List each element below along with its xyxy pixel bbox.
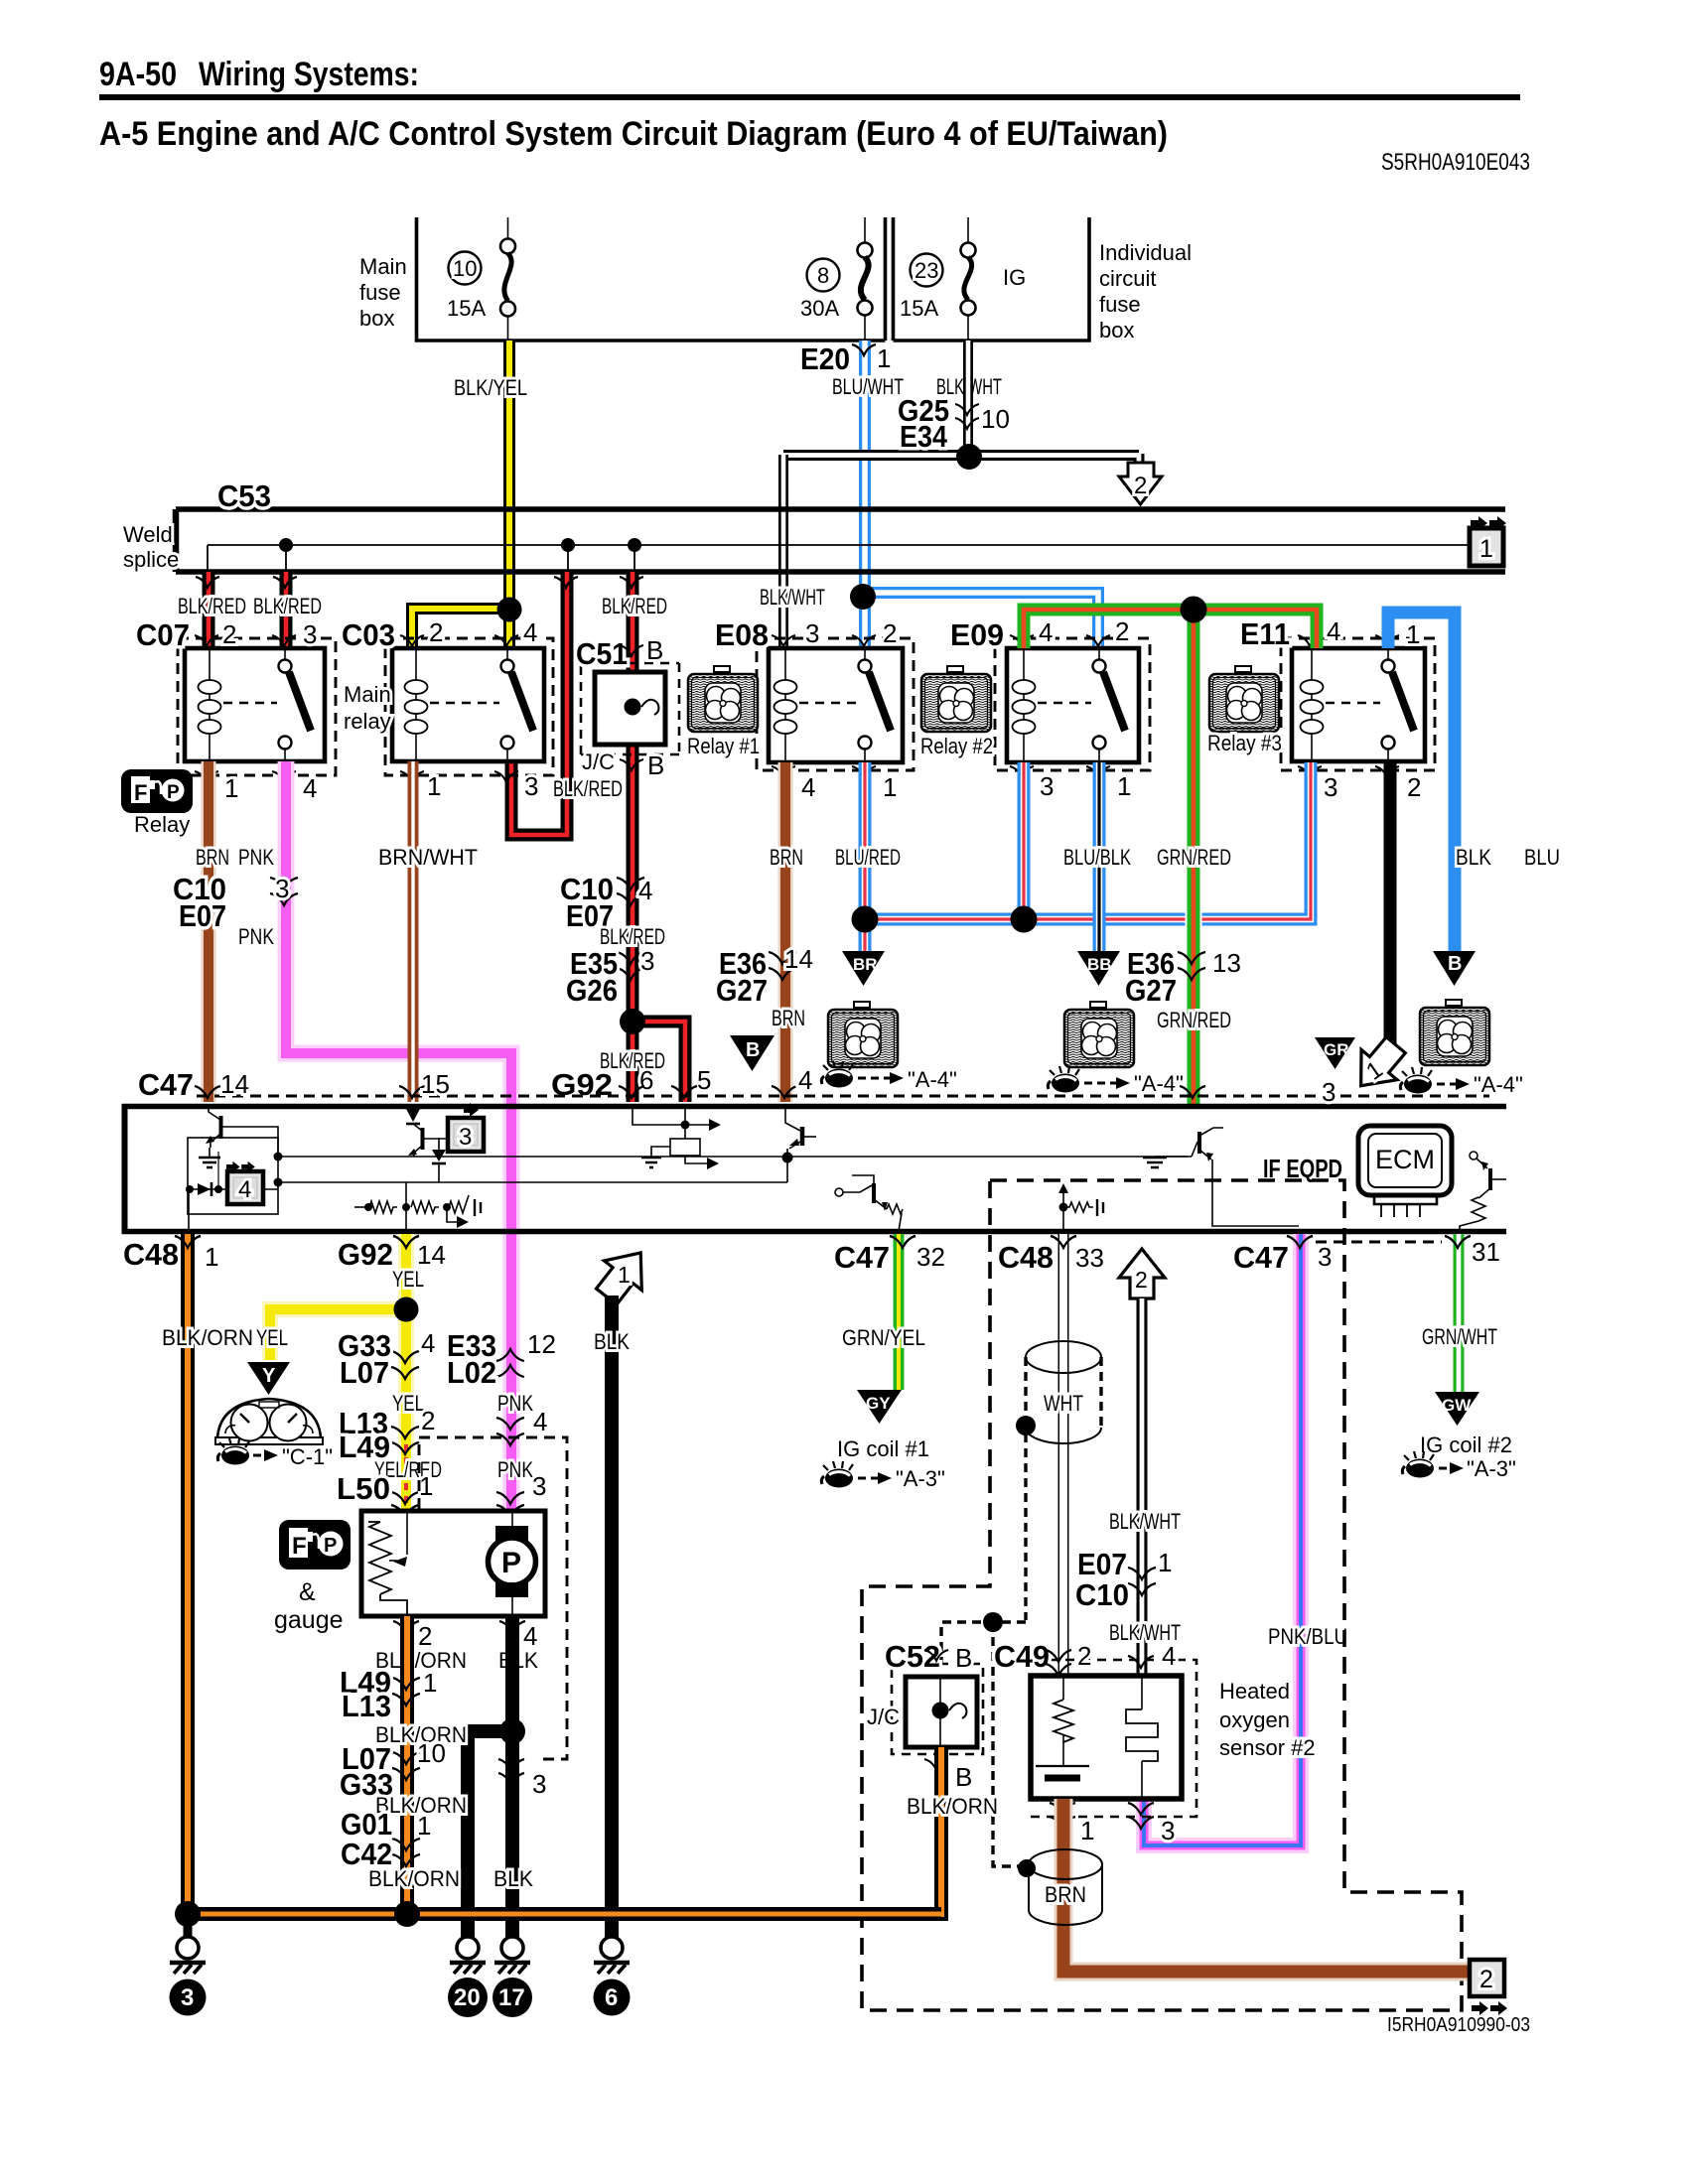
svg-text:3: 3 <box>1324 772 1337 802</box>
svg-text:1: 1 <box>1479 535 1493 563</box>
svg-text:1: 1 <box>1406 619 1420 649</box>
svg-text:C07: C07 <box>136 617 190 652</box>
svg-text:YEL: YEL <box>392 1267 424 1292</box>
svg-text:BLK/RED: BLK/RED <box>178 594 246 618</box>
svg-text:3: 3 <box>181 1984 194 2011</box>
svg-text:C48: C48 <box>123 1237 179 1272</box>
svg-text:4: 4 <box>238 1176 251 1203</box>
svg-text:30A: 30A <box>800 296 839 321</box>
svg-text:10: 10 <box>981 404 1010 434</box>
svg-text:3: 3 <box>532 1769 546 1799</box>
svg-text:&: & <box>299 1578 316 1606</box>
svg-text:C47: C47 <box>138 1067 194 1102</box>
svg-text:6: 6 <box>605 1984 618 2011</box>
svg-text:PNK/BLU: PNK/BLU <box>1268 1624 1347 1649</box>
svg-text:3: 3 <box>275 874 289 903</box>
svg-text:C47: C47 <box>1233 1240 1289 1275</box>
svg-text:BLU/WHT: BLU/WHT <box>832 374 904 399</box>
svg-text:3: 3 <box>805 618 819 648</box>
svg-text:fuse: fuse <box>359 280 401 305</box>
svg-text:BLK/RED: BLK/RED <box>553 776 623 801</box>
svg-text:6: 6 <box>639 1065 653 1095</box>
svg-text:J/C: J/C <box>867 1705 900 1729</box>
svg-text:4: 4 <box>303 773 317 803</box>
svg-text:splice: splice <box>123 547 179 572</box>
svg-text:BLK/RED: BLK/RED <box>602 594 667 618</box>
svg-text:1: 1 <box>1117 771 1131 801</box>
svg-text:PNK: PNK <box>238 924 274 949</box>
svg-text:sensor #2: sensor #2 <box>1219 1735 1316 1760</box>
svg-text:GRN/RED: GRN/RED <box>1157 845 1231 870</box>
svg-text:2: 2 <box>1407 772 1421 802</box>
svg-text:E07: E07 <box>179 898 226 933</box>
svg-text:BRN: BRN <box>770 845 803 870</box>
svg-text:fuse: fuse <box>1099 292 1141 317</box>
svg-text:B: B <box>955 1643 972 1673</box>
svg-text:oxygen: oxygen <box>1219 1707 1290 1732</box>
svg-text:"A-3": "A-3" <box>896 1466 945 1491</box>
svg-text:P: P <box>324 1535 337 1557</box>
svg-text:4: 4 <box>533 1407 547 1436</box>
svg-text:gauge: gauge <box>274 1606 344 1634</box>
svg-text:E08: E08 <box>715 617 769 652</box>
svg-text:1: 1 <box>427 771 441 801</box>
svg-text:4: 4 <box>523 1621 537 1651</box>
svg-text:3: 3 <box>532 1471 546 1501</box>
svg-text:13: 13 <box>1212 948 1241 978</box>
svg-text:1: 1 <box>1080 1816 1094 1845</box>
svg-text:BLU: BLU <box>1524 845 1560 870</box>
svg-text:box: box <box>1099 318 1134 342</box>
svg-text:3: 3 <box>1322 1077 1336 1107</box>
svg-text:S5RH0A910E043: S5RH0A910E043 <box>1381 149 1530 176</box>
svg-text:4: 4 <box>523 617 537 647</box>
svg-text:I5RH0A910990-03: I5RH0A910990-03 <box>1387 2014 1530 2036</box>
svg-text:"A-4": "A-4" <box>908 1067 957 1092</box>
svg-text:E11: E11 <box>1240 616 1290 651</box>
svg-text:4: 4 <box>421 1328 435 1358</box>
svg-text:2: 2 <box>1135 1267 1148 1293</box>
svg-text:3: 3 <box>459 1124 472 1151</box>
svg-text:Main: Main <box>359 254 407 279</box>
svg-text:GW: GW <box>1442 1396 1472 1415</box>
svg-text:relay: relay <box>344 709 391 734</box>
svg-text:G92: G92 <box>338 1237 393 1272</box>
svg-text:BR: BR <box>853 955 878 974</box>
svg-text:P: P <box>501 1547 521 1579</box>
svg-text:C10: C10 <box>1075 1577 1129 1612</box>
svg-text:2: 2 <box>883 618 897 648</box>
svg-text:"A-4": "A-4" <box>1474 1072 1523 1097</box>
svg-text:4: 4 <box>638 876 652 905</box>
svg-text:12: 12 <box>527 1329 556 1359</box>
svg-text:BLK/WHT: BLK/WHT <box>760 585 825 610</box>
svg-text:1: 1 <box>877 343 891 373</box>
svg-text:BRN/WHT: BRN/WHT <box>378 845 478 870</box>
svg-text:C51: C51 <box>576 636 628 671</box>
svg-text:G27: G27 <box>716 973 768 1008</box>
svg-text:BLK/ORN: BLK/ORN <box>368 1866 460 1891</box>
svg-text:2: 2 <box>429 617 443 647</box>
svg-text:2: 2 <box>1115 616 1129 646</box>
svg-text:Relay #1: Relay #1 <box>687 734 760 758</box>
svg-text:BLK/WHT: BLK/WHT <box>1109 1509 1181 1534</box>
svg-text:C48: C48 <box>998 1240 1054 1275</box>
svg-text:GY: GY <box>866 1394 891 1413</box>
svg-text:1: 1 <box>417 1811 431 1841</box>
svg-text:"A-4": "A-4" <box>1134 1071 1184 1096</box>
svg-text:10: 10 <box>417 1738 446 1768</box>
svg-text:Individual: Individual <box>1099 240 1192 265</box>
svg-text:1: 1 <box>618 1262 631 1288</box>
svg-text:BB: BB <box>1087 955 1112 974</box>
svg-text:B: B <box>746 1039 760 1061</box>
svg-text:2: 2 <box>418 1621 432 1651</box>
svg-text:3: 3 <box>640 946 654 976</box>
svg-text:E09: E09 <box>950 617 1004 652</box>
svg-text:BLK/RED: BLK/RED <box>253 594 322 618</box>
svg-text:33: 33 <box>1075 1243 1104 1273</box>
svg-text:L02: L02 <box>447 1355 496 1390</box>
svg-text:YEL: YEL <box>392 1391 424 1416</box>
svg-text:G27: G27 <box>1125 973 1177 1008</box>
svg-text:E07: E07 <box>1077 1547 1127 1581</box>
svg-text:BLK/ORN: BLK/ORN <box>907 1794 998 1819</box>
svg-text:B: B <box>955 1762 972 1792</box>
svg-text:PNK: PNK <box>497 1457 533 1482</box>
svg-text:BRN: BRN <box>772 1006 805 1030</box>
svg-text:4: 4 <box>1162 1641 1176 1671</box>
svg-text:"A-3": "A-3" <box>1467 1456 1516 1481</box>
svg-text:B: B <box>1448 953 1462 975</box>
svg-text:GRN/RED: GRN/RED <box>1157 1008 1231 1032</box>
svg-text:F: F <box>134 780 147 805</box>
svg-text:BRN: BRN <box>196 845 229 870</box>
svg-text:3: 3 <box>303 619 317 649</box>
svg-text:Main: Main <box>344 682 391 707</box>
svg-text:box: box <box>359 306 394 331</box>
svg-text:15: 15 <box>421 1069 450 1099</box>
svg-text:BLK: BLK <box>1456 845 1491 870</box>
svg-text:Weld: Weld <box>123 522 173 547</box>
svg-text:B: B <box>646 635 663 665</box>
svg-text:2: 2 <box>421 1406 435 1435</box>
svg-text:3: 3 <box>1161 1816 1175 1845</box>
svg-text:BLU/RED: BLU/RED <box>835 845 901 870</box>
svg-text:2: 2 <box>1077 1641 1091 1671</box>
svg-text:C03: C03 <box>342 617 395 652</box>
svg-text:GRN/WHT: GRN/WHT <box>1422 1324 1497 1349</box>
svg-text:B: B <box>647 751 664 780</box>
svg-text:PNK: PNK <box>497 1391 533 1416</box>
svg-text:3: 3 <box>524 771 538 801</box>
svg-text:C52: C52 <box>885 1639 940 1674</box>
svg-text:J/C: J/C <box>582 750 615 774</box>
svg-text:C49: C49 <box>994 1639 1050 1674</box>
svg-text:1: 1 <box>419 1471 433 1501</box>
svg-text:1: 1 <box>423 1668 437 1698</box>
svg-text:L13: L13 <box>342 1689 391 1723</box>
svg-text:1: 1 <box>1158 1548 1172 1577</box>
svg-text:A-5 Engine and A/C Control Sys: A-5 Engine and A/C Control System Circui… <box>99 115 1168 153</box>
svg-text:BLK: BLK <box>493 1866 533 1891</box>
svg-text:"C-1": "C-1" <box>282 1444 333 1469</box>
svg-text:BRN: BRN <box>1045 1882 1086 1907</box>
svg-text:2: 2 <box>222 619 236 649</box>
svg-text:2: 2 <box>1479 1966 1493 1993</box>
svg-text:GR: GR <box>1324 1040 1349 1059</box>
svg-text:8: 8 <box>817 263 829 288</box>
svg-text:G26: G26 <box>566 973 618 1008</box>
svg-text:P: P <box>167 782 180 803</box>
svg-text:F: F <box>292 1533 307 1560</box>
svg-text:15A: 15A <box>900 296 938 321</box>
svg-text:31: 31 <box>1472 1237 1500 1267</box>
svg-text:1: 1 <box>883 772 897 802</box>
svg-text:BLK: BLK <box>594 1329 630 1354</box>
svg-text:Heated: Heated <box>1219 1679 1290 1704</box>
svg-text:C47: C47 <box>834 1240 890 1275</box>
svg-text:C53: C53 <box>217 478 271 513</box>
svg-text:23: 23 <box>914 258 938 283</box>
svg-text:4: 4 <box>1039 617 1053 647</box>
svg-text:9A-50: 9A-50 <box>99 56 177 93</box>
svg-text:15A: 15A <box>447 296 486 321</box>
svg-text:4: 4 <box>798 1065 812 1095</box>
svg-text:GRN/YEL: GRN/YEL <box>842 1325 925 1350</box>
svg-text:Relay: Relay <box>134 812 190 837</box>
svg-text:BLK/YEL: BLK/YEL <box>454 375 527 400</box>
svg-text:BLU/BLK: BLU/BLK <box>1063 845 1131 870</box>
svg-text:IG coil #2: IG coil #2 <box>1420 1433 1512 1457</box>
svg-text:ECM: ECM <box>1375 1145 1435 1174</box>
svg-text:IG coil #1: IG coil #1 <box>837 1436 929 1461</box>
svg-text:1: 1 <box>224 773 238 803</box>
svg-text:14: 14 <box>220 1069 249 1099</box>
svg-text:Y: Y <box>262 1365 276 1387</box>
svg-text:Relay #2: Relay #2 <box>920 734 993 758</box>
svg-text:14: 14 <box>417 1240 446 1270</box>
svg-text:E20: E20 <box>800 341 850 376</box>
svg-text:Relay #3: Relay #3 <box>1207 731 1282 755</box>
svg-text:10: 10 <box>453 256 477 281</box>
svg-text:Wiring Systems:: Wiring Systems: <box>199 56 419 93</box>
svg-text:circuit: circuit <box>1099 266 1156 291</box>
svg-text:E34: E34 <box>900 419 948 454</box>
svg-text:YEL: YEL <box>256 1325 288 1350</box>
svg-text:L07: L07 <box>340 1355 389 1390</box>
svg-text:17: 17 <box>498 1984 525 2011</box>
svg-text:3: 3 <box>1318 1242 1332 1272</box>
svg-text:5: 5 <box>697 1065 711 1095</box>
svg-text:2: 2 <box>1134 473 1147 499</box>
svg-text:14: 14 <box>784 944 813 974</box>
svg-text:1: 1 <box>205 1242 218 1272</box>
svg-text:32: 32 <box>916 1242 945 1272</box>
svg-text:WHT: WHT <box>1044 1391 1083 1416</box>
svg-text:3: 3 <box>1040 771 1054 801</box>
svg-text:IG: IG <box>1003 265 1026 290</box>
svg-text:20: 20 <box>454 1984 481 2011</box>
svg-text:PNK: PNK <box>238 845 274 870</box>
svg-text:4: 4 <box>801 772 815 802</box>
svg-text:4: 4 <box>1327 616 1340 646</box>
svg-text:L50: L50 <box>337 1471 390 1506</box>
svg-text:BLK/ORN: BLK/ORN <box>162 1325 253 1350</box>
